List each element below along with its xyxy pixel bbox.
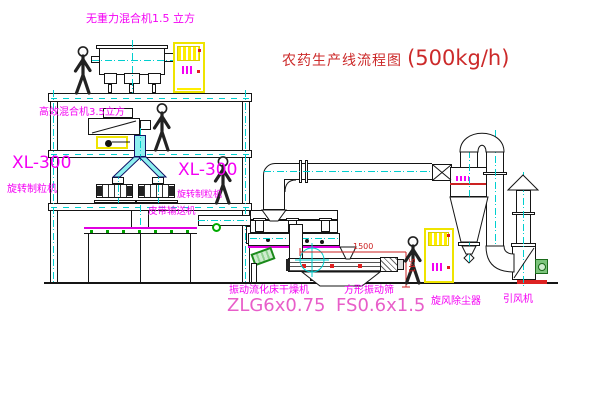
stack-rain-cap [508, 175, 538, 190]
downpipe-elbow [486, 246, 514, 272]
label-granulator-right-name: 旋转制粒机 [177, 191, 222, 200]
label-sifter-model: FS0.6x1.5 [336, 297, 425, 315]
y-chute-left [113, 157, 141, 177]
label-granulator-right-model: XL-300 [178, 162, 237, 179]
dimension-sifter-length: 1500 [353, 243, 373, 251]
riser-inner-corner [285, 180, 296, 192]
label-floor2-mixer: 高效混合机3.5立方 [39, 108, 125, 118]
person-figure [155, 104, 170, 150]
label-granulator-left-model: XL-300 [12, 155, 71, 172]
label-dryer-model: ZLG6x0.75 [227, 297, 326, 315]
fan-housing-line [514, 248, 534, 278]
mixer2-belt-line [92, 121, 136, 142]
label-fan: 引风机 [503, 295, 533, 305]
flow-diagram-canvas: 农药生产线流程图 (500kg/h) 无重力混合机1.5 立方 高效混合机3.5… [0, 0, 600, 403]
title-capacity: (500kg/h) [407, 46, 509, 70]
inlet-box-brace [433, 165, 451, 180]
sifter-base [302, 272, 380, 286]
hood-transition [262, 210, 286, 221]
person-figure [76, 47, 91, 93]
label-top-mixer: 无重力混合机1.5 立方 [86, 13, 195, 24]
cyclone-outlet-funnel [462, 246, 476, 254]
cyclone-ubend-pipe [460, 133, 504, 152]
dimension-sifter-height: 541 [407, 258, 415, 273]
label-granulator-left-name: 旋转制粒机 [7, 185, 57, 195]
page-title: 农药生产线流程图 (500kg/h) [282, 46, 509, 70]
y-chute-right [139, 157, 166, 177]
cyclone-cone [450, 197, 488, 242]
label-cyclone: 旋风除尘器 [431, 297, 481, 307]
title-text: 农药生产线流程图 [282, 53, 402, 69]
label-belt-conveyor: 皮带输送机 [148, 207, 196, 217]
